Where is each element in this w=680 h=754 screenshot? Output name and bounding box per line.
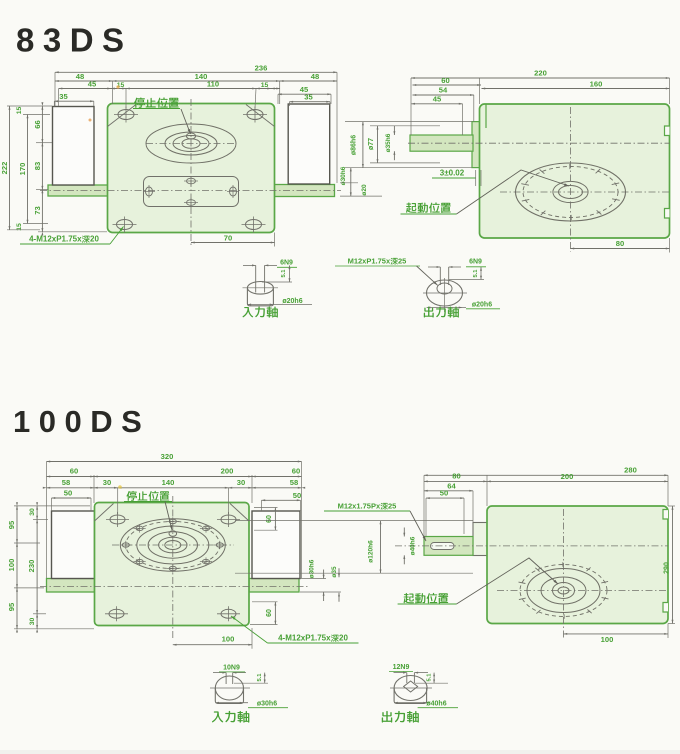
svg-text:83DS: 83DS [16, 22, 133, 59]
svg-text:30: 30 [103, 478, 111, 487]
svg-text:25: 25 [388, 502, 396, 511]
svg-text:ø77: ø77 [368, 138, 375, 150]
svg-text:320: 320 [161, 452, 174, 461]
svg-text:50: 50 [440, 489, 448, 498]
svg-text:54: 54 [439, 86, 448, 95]
svg-text:35: 35 [304, 93, 313, 102]
svg-text:10N9: 10N9 [223, 665, 240, 672]
svg-text:12N9: 12N9 [393, 664, 410, 671]
svg-text:64: 64 [447, 481, 456, 490]
svg-text:ø40h6: ø40h6 [426, 701, 446, 708]
svg-text:50: 50 [64, 489, 72, 498]
svg-text:45: 45 [433, 95, 442, 104]
svg-text:15: 15 [261, 82, 269, 89]
svg-text:230: 230 [27, 560, 36, 573]
svg-text:20: 20 [339, 634, 348, 643]
svg-text:95: 95 [7, 602, 16, 611]
svg-text:30: 30 [29, 618, 36, 626]
svg-text:15: 15 [16, 107, 23, 115]
svg-text:58: 58 [62, 478, 70, 487]
svg-text:222: 222 [0, 162, 9, 175]
svg-text:60: 60 [266, 609, 273, 617]
svg-text:ø20h6: ø20h6 [282, 298, 302, 305]
svg-text:80: 80 [452, 472, 460, 481]
svg-text:ø35h6: ø35h6 [385, 133, 392, 152]
svg-text:4-M12xP1.75x: 4-M12xP1.75x [278, 634, 331, 643]
svg-text:60: 60 [292, 467, 300, 476]
svg-text:3±0.02: 3±0.02 [440, 169, 465, 178]
svg-text:ø20h6: ø20h6 [472, 301, 492, 308]
svg-text:ø30h6: ø30h6 [309, 559, 316, 578]
svg-text:25: 25 [398, 257, 406, 266]
svg-text:ø20: ø20 [361, 184, 368, 196]
svg-text:100DS: 100DS [13, 404, 150, 439]
svg-text:58: 58 [290, 478, 298, 487]
svg-text:ø35: ø35 [331, 566, 338, 578]
svg-text:140: 140 [195, 72, 208, 81]
svg-text:M12xP1.75x: M12xP1.75x [348, 257, 391, 266]
svg-text:6N9: 6N9 [280, 259, 293, 266]
svg-text:170: 170 [18, 163, 27, 176]
svg-text:80: 80 [616, 239, 624, 248]
svg-text:ø30h6: ø30h6 [257, 701, 277, 708]
svg-text:35: 35 [59, 92, 68, 101]
svg-text:70: 70 [224, 233, 232, 242]
svg-text:140: 140 [162, 478, 175, 487]
svg-text:20: 20 [90, 235, 99, 244]
svg-text:95: 95 [7, 520, 16, 529]
svg-text:30: 30 [237, 478, 245, 487]
svg-text:ø86h6: ø86h6 [351, 135, 358, 155]
svg-text:60: 60 [266, 515, 273, 523]
svg-text:M12x1.75Px: M12x1.75Px [338, 502, 381, 511]
svg-text:280: 280 [624, 465, 637, 474]
svg-text:45: 45 [88, 79, 97, 88]
svg-text:236: 236 [255, 63, 268, 72]
svg-text:ø120h6: ø120h6 [368, 540, 375, 563]
svg-text:66: 66 [33, 120, 42, 128]
svg-text:60: 60 [70, 467, 78, 476]
svg-text:30: 30 [29, 508, 36, 516]
svg-text:100: 100 [222, 635, 235, 644]
svg-text:48: 48 [76, 72, 84, 81]
svg-text:48: 48 [311, 72, 319, 81]
svg-text:5.1: 5.1 [257, 673, 263, 682]
svg-text:83: 83 [33, 162, 42, 170]
svg-text:5.1: 5.1 [281, 269, 287, 278]
svg-text:100: 100 [7, 559, 16, 572]
svg-text:6N9: 6N9 [469, 259, 482, 266]
svg-text:50: 50 [293, 491, 301, 500]
svg-text:200: 200 [561, 472, 574, 481]
svg-text:200: 200 [221, 467, 234, 476]
svg-text:60: 60 [441, 76, 449, 85]
svg-text:290: 290 [664, 562, 671, 574]
svg-text:220: 220 [534, 69, 547, 78]
svg-text:100: 100 [601, 635, 614, 644]
svg-text:5.1: 5.1 [427, 673, 433, 682]
svg-text:5.1: 5.1 [473, 269, 479, 278]
svg-text:4-M12xP1.75x: 4-M12xP1.75x [29, 235, 82, 244]
svg-text:160: 160 [590, 79, 603, 88]
svg-text:73: 73 [33, 206, 42, 214]
svg-text:ø40h6: ø40h6 [410, 536, 417, 555]
svg-text:110: 110 [207, 79, 219, 88]
